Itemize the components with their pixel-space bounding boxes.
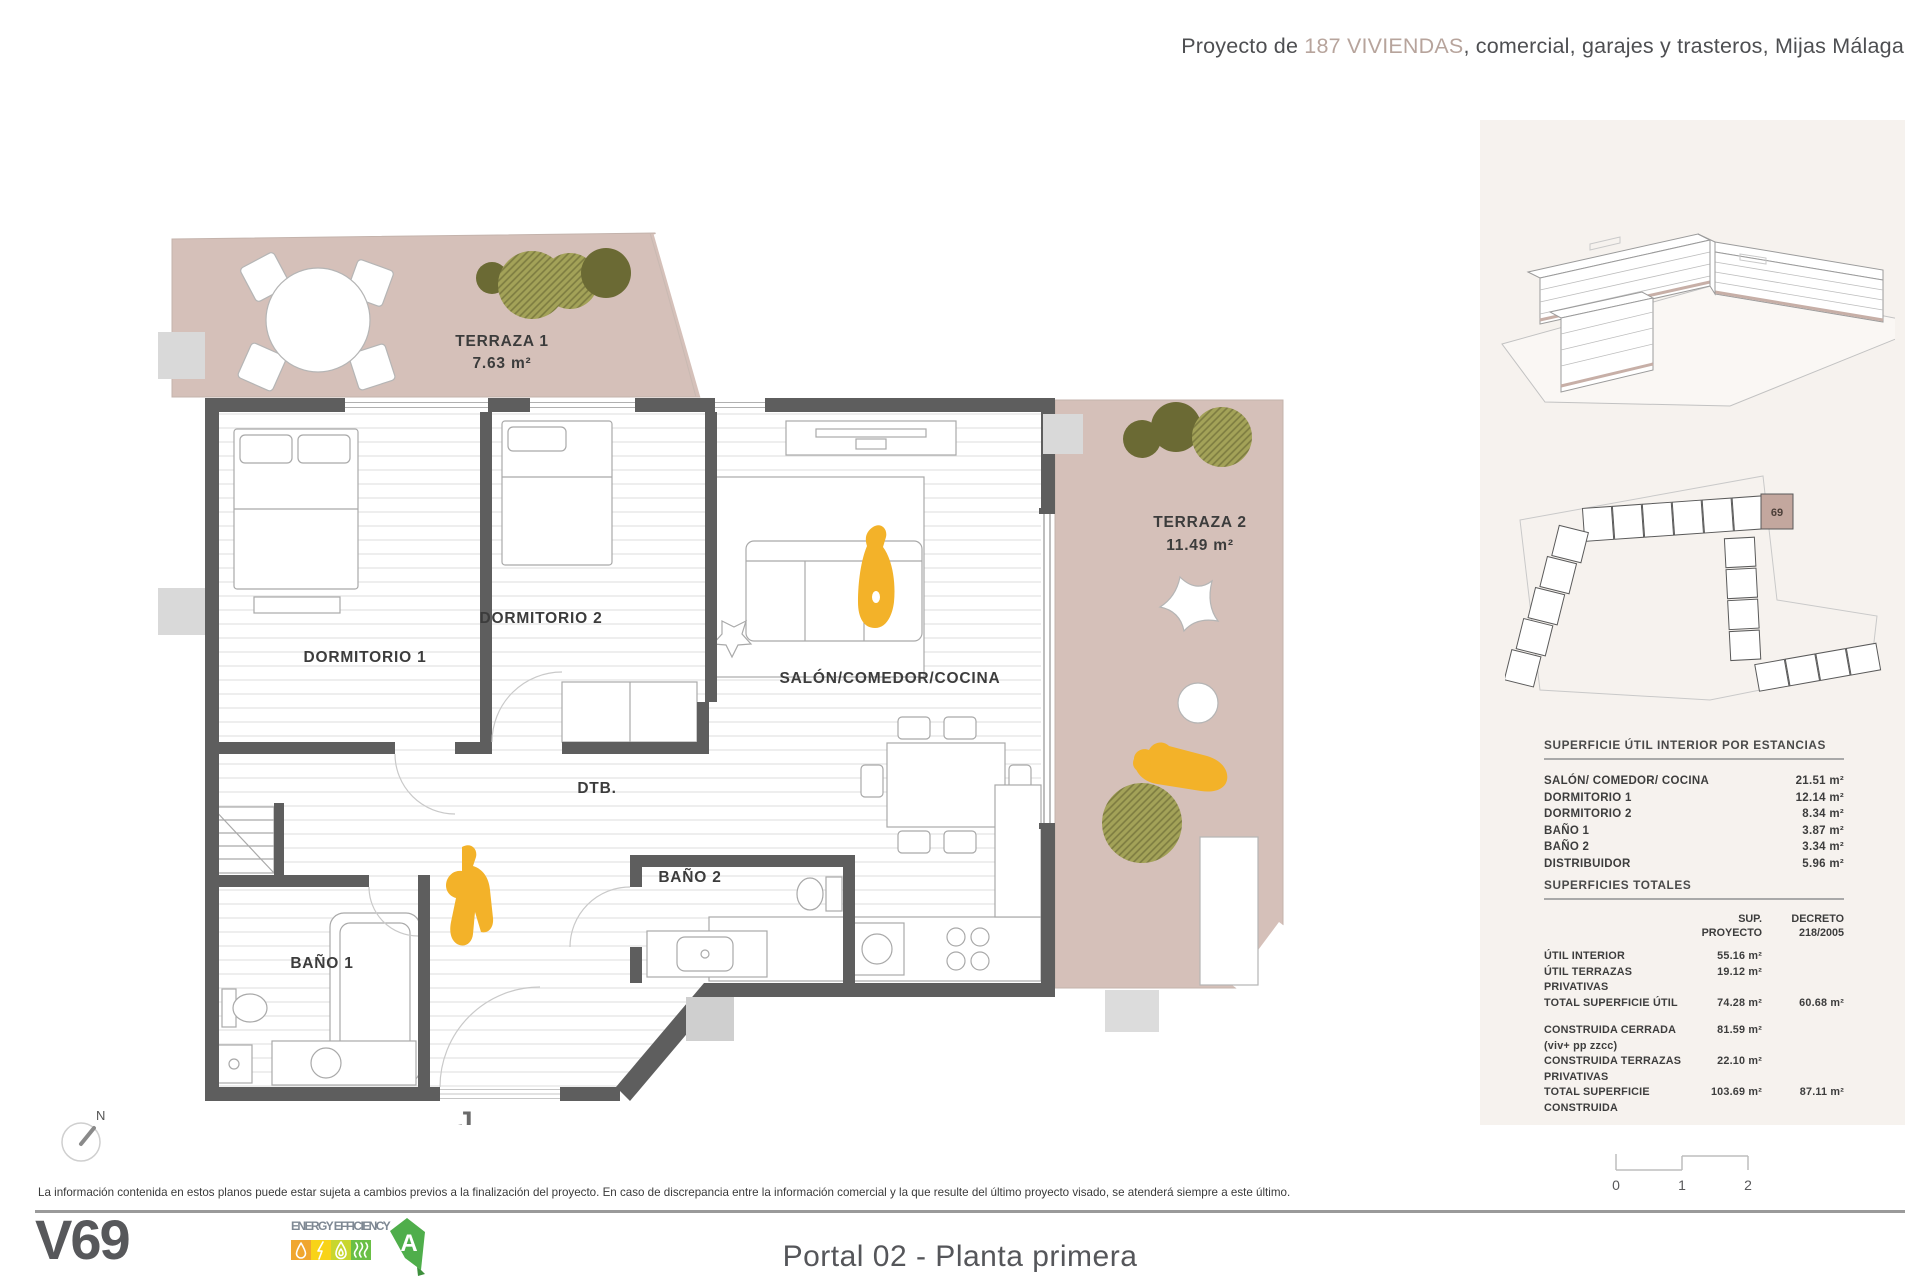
table-row: BAÑO 23.34 m²	[1544, 839, 1844, 856]
salon-label: SALÓN/COMEDOR/COCINA	[780, 669, 1001, 687]
header-prefix: Proyecto de	[1181, 34, 1304, 58]
scale-0: 0	[1612, 1177, 1620, 1193]
building-axonometric-drawing	[1490, 164, 1895, 454]
floor-key-plan: 69	[1505, 468, 1885, 718]
dtb-label: DTB.	[577, 780, 616, 797]
keyplan-left-wing	[1505, 522, 1588, 691]
person-figure-terrace-head	[1133, 754, 1151, 772]
terraza-2-zone	[1055, 400, 1283, 988]
table-row: CONSTRUIDA TERRAZAS PRIVATIVAS22.10 m²	[1544, 1054, 1844, 1085]
compass-needle-icon	[81, 1128, 94, 1144]
north-label: N	[96, 1108, 105, 1123]
table-row: TOTAL SUPERFICIE CONSTRUIDA103.69 m²87.1…	[1544, 1085, 1844, 1116]
table-row: CONSTRUIDA CERRADA (viv+ pp zzcc)81.59 m…	[1544, 1023, 1844, 1054]
scale-2: 2	[1744, 1177, 1752, 1193]
footer-divider	[35, 1210, 1905, 1213]
terrace2-area: 11.49 m²	[1166, 537, 1234, 554]
energy-label: ENERGY EFFICIENCY	[291, 1219, 391, 1233]
interior-table-title: SUPERFICIE ÚTIL INTERIOR POR ESTANCIAS	[1544, 738, 1844, 760]
header-highlight: 187 VIVIENDAS	[1304, 34, 1463, 58]
keyplan-bottom-wing	[1755, 643, 1881, 691]
scale-bar: 0 1 2	[1608, 1146, 1778, 1198]
floor-plan: TERRAZA 1 7.63 m² TERRAZA 2 11.49 m² DOR…	[150, 225, 1290, 1125]
dormitorio2-label: DORMITORIO 2	[480, 610, 603, 627]
closet-shelving	[212, 807, 274, 873]
project-header: Proyecto de 187 VIVIENDAS, comercial, ga…	[1181, 34, 1904, 59]
scale-1: 1	[1678, 1177, 1686, 1193]
keyplan-mid-wing	[1724, 537, 1760, 660]
bano2-label: BAÑO 2	[658, 868, 721, 886]
interior-areas-table: SUPERFICIE ÚTIL INTERIOR POR ESTANCIAS S…	[1544, 738, 1844, 872]
table-row: DORMITORIO 28.34 m²	[1544, 806, 1844, 823]
table-row: SALÓN/ COMEDOR/ COCINA21.51 m²	[1544, 773, 1844, 790]
table-row: DISTRIBUIDOR5.96 m²	[1544, 856, 1844, 873]
terrace1-label: TERRAZA 1	[455, 333, 549, 350]
table-row: ÚTIL TERRAZAS PRIVATIVAS19.12 m²	[1544, 965, 1844, 996]
dormitorio1-label: DORMITORIO 1	[304, 649, 427, 666]
table-row: DORMITORIO 112.14 m²	[1544, 790, 1844, 807]
north-compass: N	[48, 1098, 118, 1168]
entrance-marker: J	[457, 1106, 472, 1125]
totals-table-title: SUPERFICIES TOTALES	[1544, 878, 1844, 900]
disclaimer-text: La información contenida en estos planos…	[38, 1186, 1290, 1199]
terraza-1-zone	[172, 233, 706, 397]
keyplan-top-row	[1582, 496, 1763, 541]
terrace2-label: TERRAZA 2	[1153, 514, 1247, 531]
totals-table-header: SUP.PROYECTO DECRETO218/2005	[1544, 913, 1844, 940]
header-suffix: , comercial, garajes y trasteros, Mijas …	[1463, 34, 1904, 58]
table-row: BAÑO 13.87 m²	[1544, 823, 1844, 840]
plan-sheet: Proyecto de 187 VIVIENDAS, comercial, ga…	[0, 0, 1920, 1280]
page-title: Portal 02 - Planta primera	[0, 1240, 1920, 1274]
info-panel: 69 SUPERFICIE ÚTIL INTERIOR POR ESTANCIA…	[1480, 120, 1905, 1125]
keyplan-unit-number: 69	[1771, 507, 1783, 519]
table-row: TOTAL SUPERFICIE ÚTIL74.28 m²60.68 m²	[1544, 996, 1844, 1012]
terrace1-area: 7.63 m²	[472, 355, 531, 372]
table-row: ÚTIL INTERIOR55.16 m²	[1544, 949, 1844, 965]
totals-table: SUPERFICIES TOTALES SUP.PROYECTO DECRETO…	[1544, 878, 1844, 1116]
bano1-label: BAÑO 1	[290, 954, 353, 972]
